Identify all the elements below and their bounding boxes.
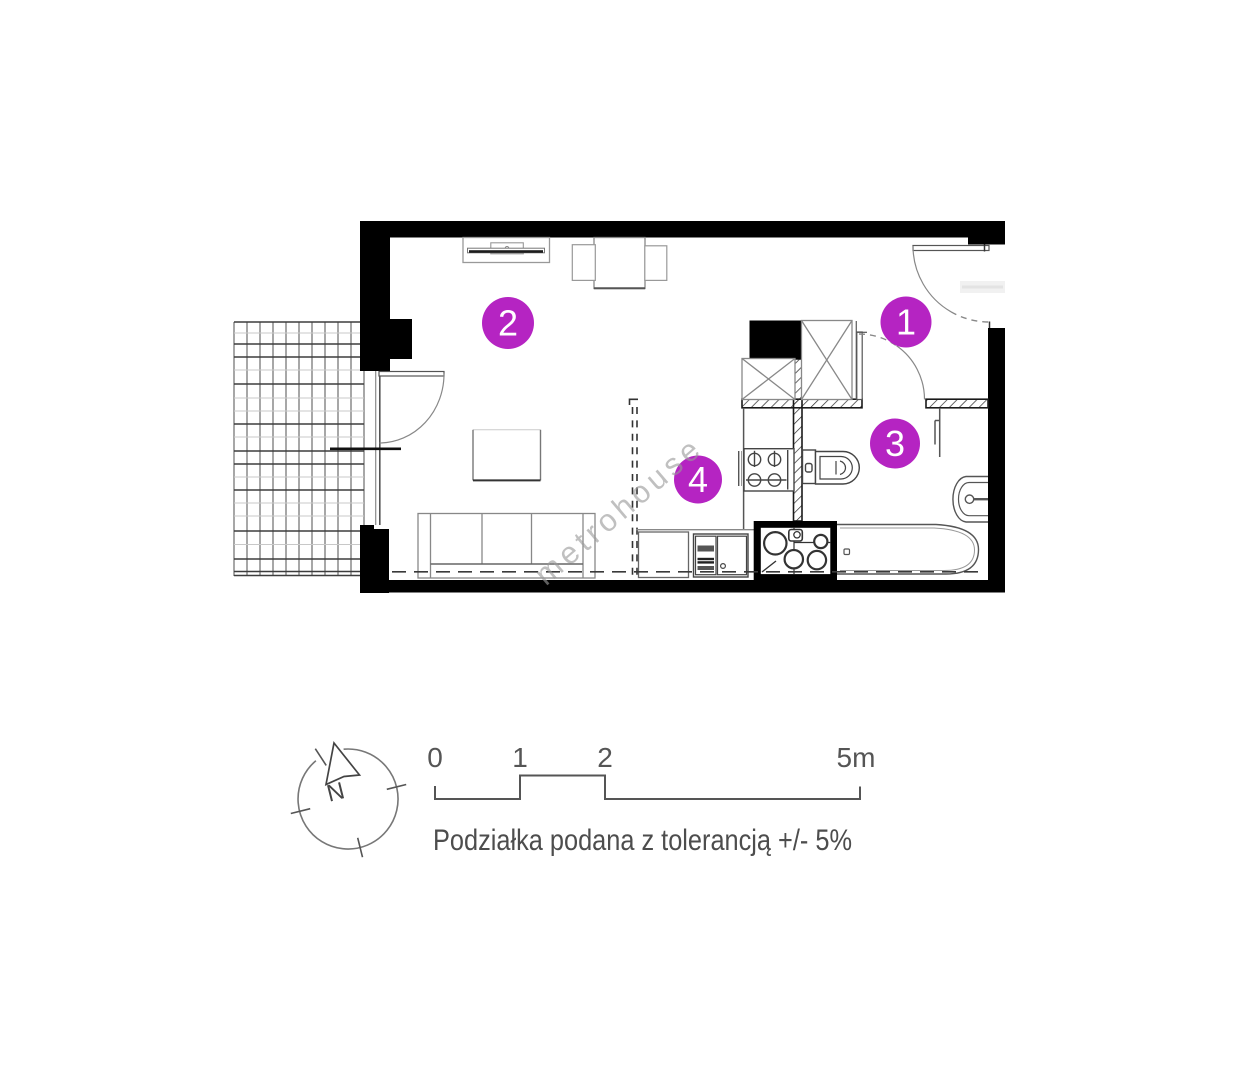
svg-text:1: 1: [512, 742, 528, 773]
svg-text:3: 3: [885, 423, 905, 464]
svg-text:0: 0: [427, 742, 443, 773]
svg-text:1: 1: [896, 302, 916, 343]
svg-text:Podziałka podana z tolerancją: Podziałka podana z tolerancją +/- 5%: [433, 824, 852, 857]
svg-text:2: 2: [498, 303, 518, 344]
svg-text:2: 2: [597, 742, 613, 773]
svg-text:5m: 5m: [837, 742, 876, 773]
